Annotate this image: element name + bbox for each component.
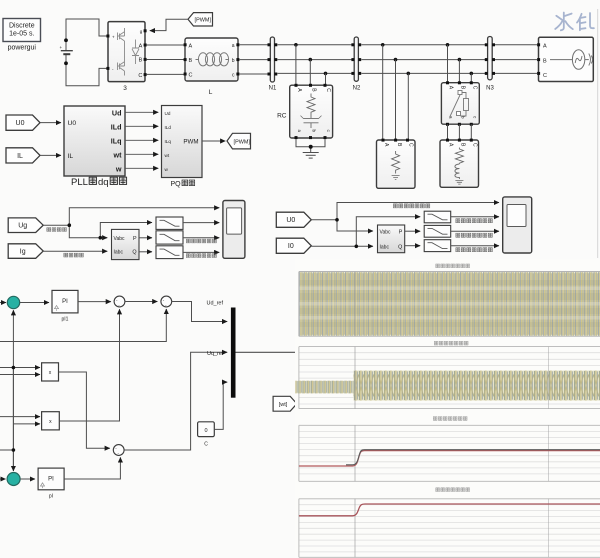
svg-text:ILd: ILd [165, 125, 172, 130]
svg-text:Iabc: Iabc [114, 250, 124, 256]
svg-text:0: 0 [204, 428, 207, 434]
svg-text:U0: U0 [16, 120, 25, 127]
svg-text:U0: U0 [286, 217, 295, 224]
svg-text:B: B [139, 58, 143, 64]
svg-text:A: A [543, 44, 547, 50]
svg-text:Ug: Ug [18, 223, 27, 230]
svg-text:RC: RC [277, 113, 287, 120]
svg-text:ILd: ILd [111, 122, 122, 131]
svg-text:Ud_ref: Ud_ref [207, 301, 224, 307]
svg-text:Uq_ref: Uq_ref [207, 351, 224, 357]
svg-text:powergui: powergui [8, 45, 37, 52]
svg-text:PI: PI [62, 299, 68, 305]
svg-text:L: L [209, 89, 213, 96]
svg-text:+: + [60, 45, 63, 50]
svg-text:N2: N2 [353, 86, 361, 92]
svg-text:pI1: pI1 [62, 317, 69, 323]
svg-text:b: b [232, 58, 235, 64]
svg-text:pI: pI [49, 494, 53, 500]
svg-text:Vabc: Vabc [380, 229, 392, 235]
svg-text:[PWM]: [PWM] [234, 140, 251, 146]
svg-text:Discrete: Discrete [9, 23, 35, 30]
svg-text:PI: PI [48, 477, 54, 483]
svg-text:C: C [325, 88, 331, 92]
svg-text:1e-05 s.: 1e-05 s. [9, 31, 34, 38]
svg-text:w: w [115, 164, 122, 173]
svg-text:IL: IL [68, 153, 74, 160]
svg-text:A: A [139, 43, 143, 49]
svg-text:a: a [232, 43, 235, 49]
svg-text:Ig: Ig [20, 248, 26, 255]
svg-text:B: B [189, 58, 193, 64]
svg-text:3: 3 [123, 85, 127, 92]
svg-text:C: C [204, 442, 208, 448]
svg-text:B: B [543, 58, 547, 64]
svg-text:Q: Q [132, 250, 136, 256]
svg-text:A: A [189, 43, 193, 49]
svg-text:Q: Q [398, 244, 402, 250]
svg-text:C: C [543, 73, 547, 79]
svg-text:I0: I0 [288, 243, 294, 250]
svg-text:C: C [472, 86, 478, 90]
svg-text:ILq: ILq [111, 136, 122, 145]
svg-text:PLL: PLL [71, 177, 88, 188]
svg-text:C: C [408, 143, 414, 147]
svg-text:wt: wt [165, 153, 170, 158]
svg-text:PWM: PWM [183, 139, 198, 146]
svg-text:P: P [133, 236, 137, 242]
svg-text:C: C [189, 73, 193, 79]
svg-text:Iabc: Iabc [380, 244, 390, 250]
svg-text:N3: N3 [486, 86, 494, 92]
svg-text:PQ: PQ [171, 181, 182, 188]
svg-text:Ud: Ud [112, 108, 122, 117]
svg-text:U0: U0 [68, 120, 77, 127]
svg-text:wt: wt [113, 150, 123, 159]
svg-text:[PWM]: [PWM] [195, 18, 212, 24]
svg-text:+: + [112, 34, 115, 39]
svg-text:Vabc: Vabc [114, 236, 126, 242]
svg-text:C: C [138, 73, 142, 79]
svg-text:P: P [399, 229, 403, 235]
svg-text:Ud: Ud [165, 111, 171, 116]
svg-text:IL: IL [17, 153, 23, 160]
svg-text:[wt]: [wt] [279, 402, 288, 408]
svg-text:ILq: ILq [165, 139, 172, 144]
svg-text:N1: N1 [269, 86, 277, 92]
svg-text:dq: dq [98, 177, 109, 188]
svg-text:C: C [472, 143, 478, 147]
